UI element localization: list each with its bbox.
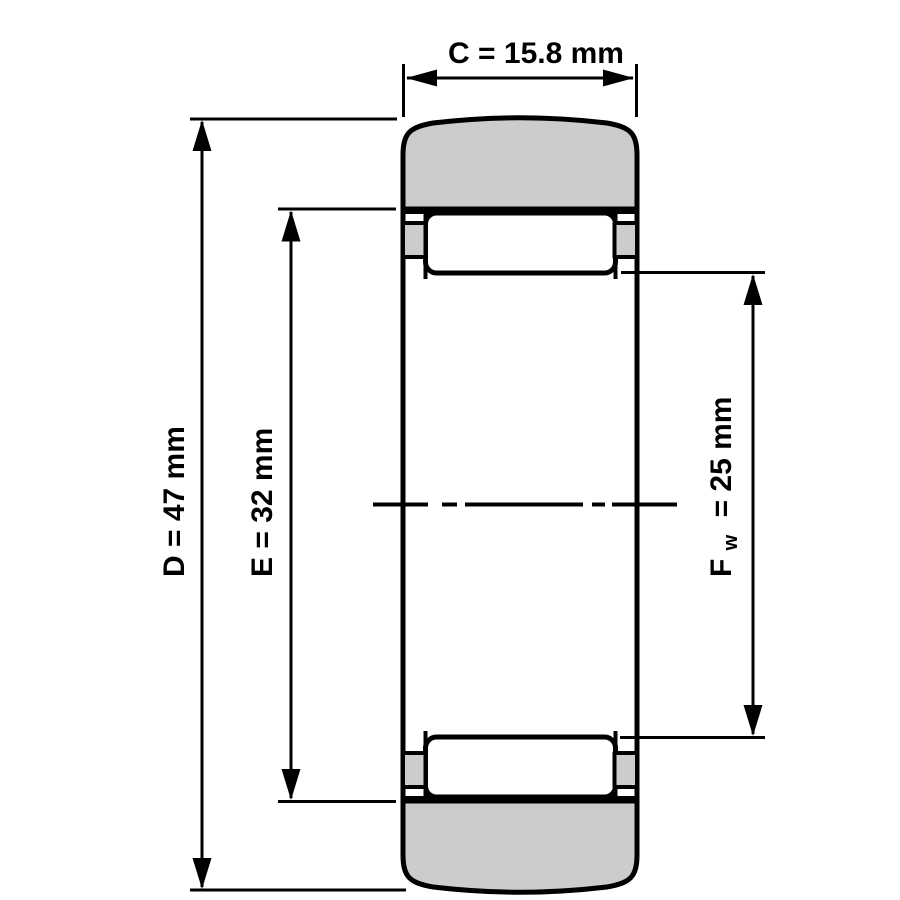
roller-bottom	[426, 737, 616, 797]
flange-bottom-left	[403, 753, 426, 787]
arrowhead-up-icon	[282, 211, 301, 242]
fw-symbol: F	[705, 559, 738, 577]
arrowhead-left-icon	[406, 70, 437, 87]
bearing-outline	[373, 118, 677, 893]
arrowhead-down-icon	[193, 858, 212, 889]
dimension-label-c: C = 15.8 mm	[448, 37, 624, 70]
dimension-D: D = 47 mm	[158, 119, 406, 890]
dimension-C: C = 15.8 mm	[404, 37, 637, 117]
dimension-label-e: E = 32 mm	[246, 428, 279, 577]
outer-ring-bottom-section	[403, 801, 637, 892]
dimension-label-fw: F w = 25 mm	[705, 397, 744, 578]
dimension-label-d: D = 47 mm	[158, 426, 191, 577]
arrowhead-down-icon	[744, 705, 763, 736]
arrowhead-down-icon	[282, 769, 301, 800]
drawing-canvas: C = 15.8 mm D = 47 mm E = 32 mm	[0, 0, 900, 900]
fw-value: = 25 mm	[705, 397, 738, 518]
flange-top-left	[403, 223, 426, 257]
outer-ring-top-section	[403, 118, 637, 209]
roller-top	[426, 213, 616, 273]
flange-top-right	[615, 223, 638, 257]
bearing-dimension-diagram: C = 15.8 mm D = 47 mm E = 32 mm	[0, 0, 900, 900]
flange-bottom-right	[615, 753, 638, 787]
fw-subscript: w	[720, 534, 742, 551]
arrowhead-right-icon	[603, 70, 634, 87]
arrowhead-up-icon	[193, 120, 212, 151]
arrowhead-up-icon	[744, 274, 763, 305]
